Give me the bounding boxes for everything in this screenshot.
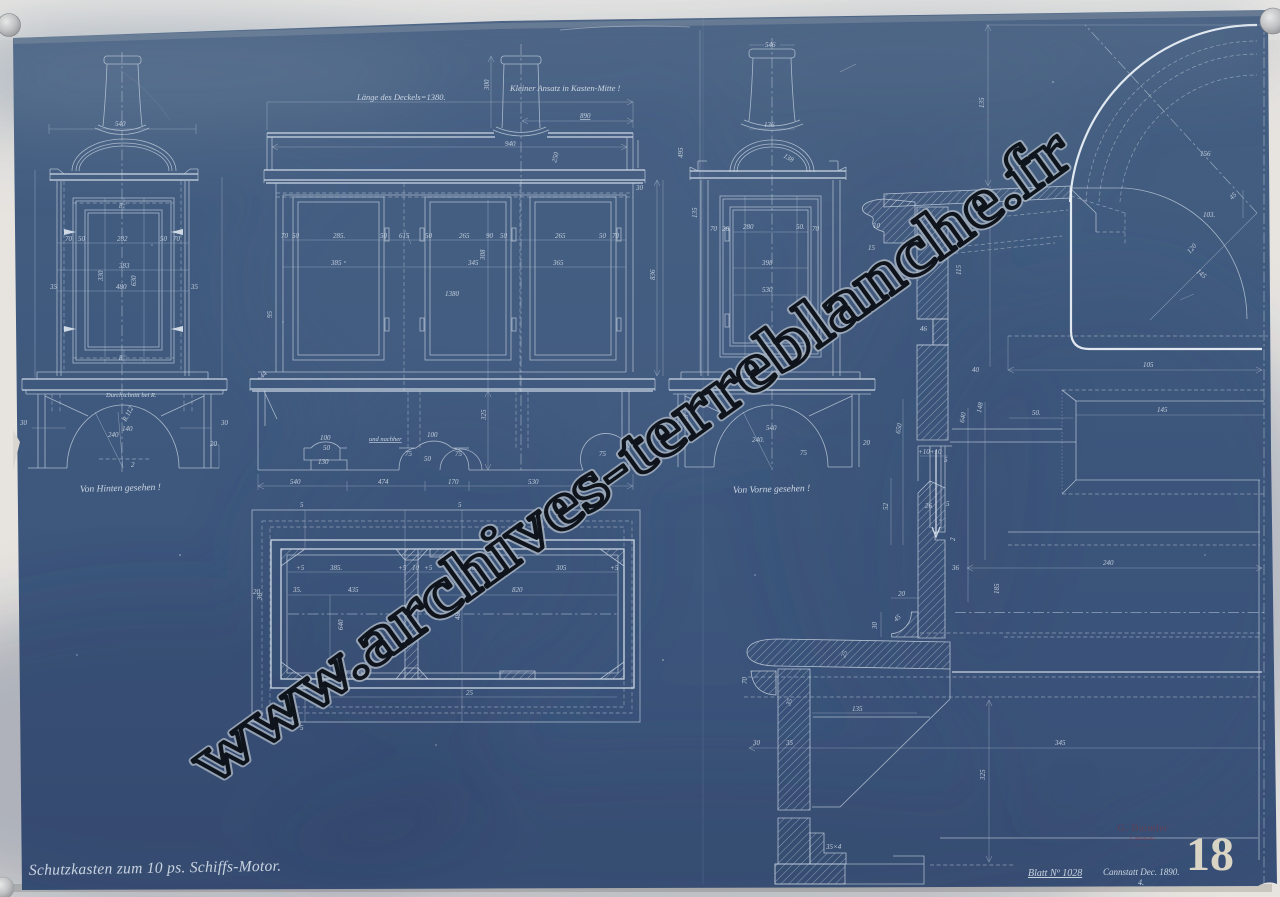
svg-text:480: 480	[116, 283, 127, 291]
svg-text:135: 135	[978, 97, 986, 108]
svg-text:820: 820	[512, 586, 523, 594]
svg-text:630: 630	[130, 275, 138, 286]
svg-text:383: 383	[118, 262, 130, 270]
svg-text:Von Vorne gesehen !: Von Vorne gesehen !	[733, 484, 811, 496]
svg-text:240.: 240.	[752, 436, 765, 444]
svg-text:50: 50	[78, 235, 86, 243]
svg-text:140: 140	[122, 425, 133, 433]
svg-text:—·—: —·—	[1135, 843, 1151, 849]
svg-text:20: 20	[210, 440, 218, 448]
svg-text:25: 25	[466, 689, 474, 697]
svg-text:100: 100	[320, 434, 331, 442]
svg-text:50: 50	[424, 455, 432, 463]
svg-text:890: 890	[580, 112, 591, 120]
svg-text:280: 280	[743, 223, 754, 231]
svg-text:385: 385	[330, 259, 342, 267]
svg-text:105: 105	[1143, 361, 1154, 369]
svg-text:103.: 103.	[1203, 211, 1216, 219]
svg-text:265: 265	[459, 232, 470, 240]
svg-text:75: 75	[800, 449, 808, 457]
svg-text:100: 100	[427, 431, 438, 439]
svg-text:75: 75	[455, 450, 463, 458]
svg-text:Cannstatt Dec. 1890.: Cannstatt Dec. 1890.	[1103, 867, 1180, 877]
svg-text:240: 240	[108, 431, 119, 439]
svg-text:2: 2	[949, 537, 957, 541]
svg-text:30: 30	[19, 419, 28, 427]
svg-text:90: 90	[486, 232, 494, 240]
svg-text:20: 20	[898, 590, 906, 598]
svg-text:330: 330	[97, 270, 105, 282]
svg-text:50: 50	[425, 232, 433, 240]
svg-text:46: 46	[920, 325, 928, 333]
svg-text:365: 365	[552, 259, 564, 267]
svg-text:435: 435	[348, 586, 359, 594]
svg-text:95: 95	[266, 311, 274, 319]
svg-text:und nachher: und nachher	[369, 436, 402, 443]
svg-text:136: 136	[764, 121, 775, 129]
svg-text:546: 546	[765, 41, 776, 49]
svg-text:70: 70	[65, 235, 73, 243]
svg-text:2: 2	[131, 461, 135, 469]
svg-text:70: 70	[173, 235, 181, 243]
svg-text:345: 345	[1054, 739, 1066, 747]
svg-text:4.: 4.	[1138, 878, 1144, 887]
svg-text:30: 30	[752, 739, 761, 747]
svg-text:495: 495	[677, 147, 685, 158]
svg-text:Durchschnitt bei R.: Durchschnitt bei R.	[105, 392, 157, 399]
svg-text:282: 282	[117, 235, 128, 243]
svg-text:8: 8	[119, 354, 123, 362]
svg-text:345: 345	[467, 259, 479, 267]
svg-text:Cannstatt.: Cannstatt.	[1130, 835, 1157, 842]
svg-text:145: 145	[1157, 406, 1168, 414]
svg-text:50.: 50.	[796, 223, 805, 231]
svg-text:26.: 26.	[722, 225, 731, 233]
svg-text:540: 540	[115, 120, 126, 128]
svg-text:35: 35	[49, 283, 58, 291]
svg-text:130: 130	[318, 458, 329, 466]
svg-text:5: 5	[300, 501, 304, 509]
svg-text:474: 474	[378, 478, 389, 486]
svg-text:50: 50	[380, 232, 388, 240]
svg-text:52: 52	[882, 503, 890, 511]
svg-text:70: 70	[812, 225, 820, 233]
svg-text:540: 540	[290, 478, 301, 486]
svg-text:35.: 35.	[292, 586, 302, 594]
svg-text:530: 530	[762, 286, 773, 294]
svg-text:+5: +5	[296, 564, 305, 572]
svg-text:18: 18	[1186, 828, 1234, 881]
svg-text:Blatt Nº 1028: Blatt Nº 1028	[1028, 868, 1082, 879]
svg-text:1380: 1380	[445, 290, 460, 298]
svg-text:5: 5	[458, 501, 462, 509]
svg-text:40: 40	[972, 366, 980, 374]
svg-text:135: 135	[852, 705, 863, 713]
svg-text:35: 35	[785, 739, 794, 747]
svg-text:70: 70	[741, 677, 749, 685]
svg-text:940: 940	[505, 140, 516, 148]
svg-text:Von Hinten gesehen !: Von Hinten gesehen !	[80, 483, 161, 495]
svg-text:G. Daimler: G. Daimler	[1118, 824, 1169, 834]
svg-text:325: 325	[480, 409, 488, 421]
svg-text:265: 265	[555, 232, 566, 240]
svg-text:26: 26	[925, 502, 933, 510]
svg-text:Kleiner Ansatz in Kasten-Mitte: Kleiner Ansatz in Kasten-Mitte !	[509, 83, 621, 93]
svg-text:385.: 385.	[329, 564, 343, 572]
svg-text:70: 70	[710, 225, 718, 233]
svg-text:35: 35	[190, 283, 199, 291]
svg-text:75: 75	[405, 450, 413, 458]
svg-text:305: 305	[555, 564, 567, 572]
svg-text:240: 240	[1103, 559, 1114, 567]
svg-text:325: 325	[979, 769, 987, 781]
svg-text:30: 30	[220, 419, 229, 427]
svg-text:285.: 285.	[333, 232, 346, 240]
svg-text:615: 615	[399, 232, 410, 240]
svg-text:135: 135	[691, 207, 699, 218]
svg-text:30: 30	[871, 622, 879, 631]
svg-text:156: 156	[1200, 150, 1211, 158]
svg-text:540: 540	[766, 424, 777, 432]
svg-text:8.: 8.	[119, 202, 125, 210]
svg-text:308: 308	[479, 249, 487, 261]
svg-text:50: 50	[599, 232, 607, 240]
svg-text:5: 5	[946, 500, 950, 508]
svg-text:170: 170	[448, 478, 459, 486]
svg-text:50: 50	[160, 235, 168, 243]
svg-text:36: 36	[951, 564, 960, 572]
svg-text:35×4: 35×4	[825, 843, 842, 851]
svg-text:36: 36	[256, 593, 264, 602]
svg-text:836: 836	[649, 269, 657, 280]
svg-text:30: 30	[635, 184, 644, 192]
svg-text:20: 20	[863, 439, 871, 447]
svg-text:Länge des Deckels=1380.: Länge des Deckels=1380.	[356, 92, 446, 102]
svg-text:300: 300	[483, 79, 491, 91]
svg-text:50: 50	[500, 232, 508, 240]
svg-text:185: 185	[993, 583, 1001, 594]
svg-text:70: 70	[281, 232, 289, 240]
svg-text:+5: +5	[610, 564, 619, 572]
svg-text:398: 398	[761, 259, 773, 267]
svg-text:50: 50	[292, 232, 300, 240]
svg-text:70: 70	[612, 232, 620, 240]
svg-text:50: 50	[323, 444, 331, 452]
svg-text:50.: 50.	[1032, 409, 1041, 417]
